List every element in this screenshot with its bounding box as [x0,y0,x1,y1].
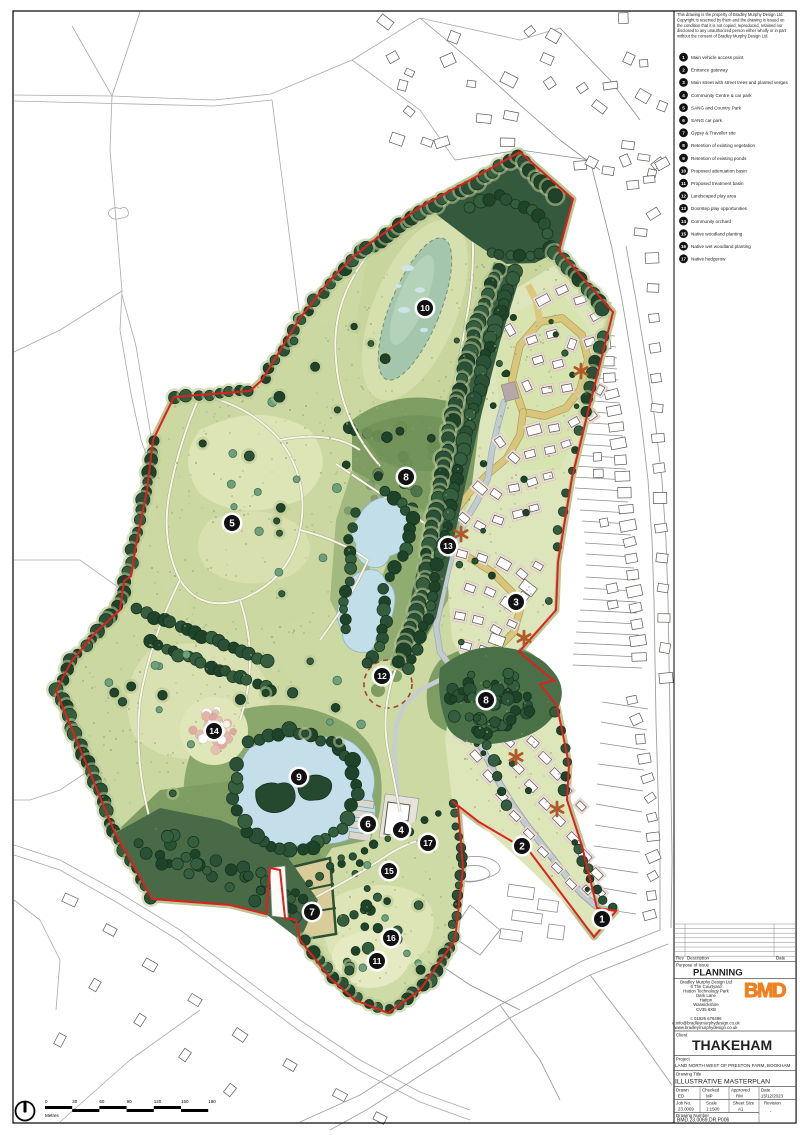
svg-text:9: 9 [296,772,302,783]
svg-text:17: 17 [681,257,687,262]
svg-text:SANG car park: SANG car park [691,118,723,123]
svg-text:Drawing Title: Drawing Title [676,1072,702,1077]
svg-text:Revision: Revision [764,1101,781,1106]
svg-text:Date: Date [761,1088,771,1093]
svg-text:A1: A1 [738,1107,744,1112]
svg-text:PLANNING: PLANNING [693,968,743,979]
svg-text:Gypsy & Traveller site: Gypsy & Traveller site [691,131,736,136]
svg-text:SANG and Country Park: SANG and Country Park [691,105,742,110]
svg-text:14: 14 [681,219,687,224]
svg-text:Retention of existing ponds: Retention of existing ponds [691,156,747,161]
svg-text:15: 15 [384,866,394,876]
svg-text:90: 90 [127,1099,133,1104]
svg-text:Project: Project [676,1057,690,1062]
svg-text:16: 16 [681,244,687,249]
svg-text:10: 10 [681,168,687,173]
svg-text:1:1500: 1:1500 [706,1107,720,1112]
svg-text:Native woodland planting: Native woodland planting [691,231,743,236]
svg-text:3: 3 [682,80,685,85]
svg-text:ED: ED [678,1094,684,1099]
svg-text:17: 17 [423,838,433,848]
svg-text:23.0069: 23.0069 [678,1107,694,1112]
svg-text:2: 2 [519,841,525,852]
svg-text:12: 12 [377,671,387,681]
svg-text:Scale: Scale [706,1101,718,1106]
svg-text:BMD.23.0069.DR.P006: BMD.23.0069.DR.P006 [677,1118,729,1124]
svg-text:150: 150 [181,1099,189,1104]
svg-text:Main street with street trees: Main street with street trees and plante… [691,80,788,85]
svg-text:7: 7 [682,131,685,136]
svg-text:Community orchard: Community orchard [691,219,732,224]
svg-text:ILLUSTRATIVE MASTERPLAN: ILLUSTRATIVE MASTERPLAN [675,1079,770,1086]
svg-text:6: 6 [682,118,685,123]
svg-text:9: 9 [682,156,685,161]
svg-text:10: 10 [420,303,430,313]
svg-text:Sheet Size: Sheet Size [733,1101,755,1106]
svg-text:LAND NORTH WEST OF PRESTON FAR: LAND NORTH WEST OF PRESTON FARM, BOOKHAM [675,1063,791,1068]
svg-text:3: 3 [513,597,519,608]
svg-text:Checked: Checked [702,1088,720,1093]
svg-text:Rev: Rev [676,956,685,961]
svg-text:4: 4 [398,825,404,836]
svg-text:1: 1 [599,914,605,925]
svg-text:12: 12 [681,194,687,199]
svg-text:Native hedgerow: Native hedgerow [691,257,726,262]
svg-text:30: 30 [72,1099,78,1104]
svg-text:Entrance gateway: Entrance gateway [691,68,728,73]
svg-text:11: 11 [372,956,381,966]
svg-text:14: 14 [209,726,219,736]
svg-text:16: 16 [386,933,396,943]
svg-text:Proposed treatment basin: Proposed treatment basin [691,181,744,186]
svg-text:www.bradleymurphydesign.co.uk: www.bradleymurphydesign.co.uk [675,1025,739,1030]
svg-text:4: 4 [682,93,685,98]
svg-text:5: 5 [229,518,235,529]
svg-text:15: 15 [681,231,687,236]
svg-text:2: 2 [682,68,685,73]
svg-text:180: 180 [208,1099,216,1104]
svg-text:Main vehicle access point: Main vehicle access point [691,55,744,60]
svg-text:11: 11 [681,181,686,186]
svg-text:8: 8 [403,472,409,483]
svg-text:Approved: Approved [731,1088,750,1093]
svg-text:60: 60 [99,1099,105,1104]
svg-text:BMD: BMD [744,980,786,1002]
svg-text:5: 5 [682,105,685,110]
svg-text:Retention of existing vegetati: Retention of existing vegetation [691,143,756,148]
svg-text:13: 13 [681,206,687,211]
svg-text:CV35 8XB: CV35 8XB [696,1007,716,1012]
svg-text:Doorstep play opportunities: Doorstep play opportunities [691,206,748,211]
svg-text:Metres: Metres [45,1113,60,1118]
svg-text:Description: Description [687,956,710,961]
svg-text:1: 1 [682,55,685,60]
svg-text:Drawn: Drawn [676,1088,689,1093]
svg-text:8: 8 [483,695,489,706]
svg-text:13: 13 [443,541,453,551]
svg-text:MP: MP [706,1094,713,1099]
svg-text:Landscaped play area: Landscaped play area [691,194,737,199]
svg-text:120: 120 [154,1099,162,1104]
svg-text:Proposed attenuation basin: Proposed attenuation basin [691,168,747,173]
svg-text:Native wet woodland planting: Native wet woodland planting [691,244,751,249]
svg-text:Community Centre & car park: Community Centre & car park [691,93,752,98]
svg-text:8: 8 [682,143,685,148]
svg-text:THAKEHAM: THAKEHAM [692,1037,772,1053]
svg-text:Date: Date [776,956,786,961]
svg-text:Client: Client [676,1033,688,1038]
svg-text:7: 7 [309,907,315,918]
svg-text:RM: RM [736,1094,743,1099]
svg-text:Job No.: Job No. [676,1101,691,1106]
svg-text:6: 6 [365,819,371,830]
svg-text:15/12/2023: 15/12/2023 [761,1094,784,1099]
